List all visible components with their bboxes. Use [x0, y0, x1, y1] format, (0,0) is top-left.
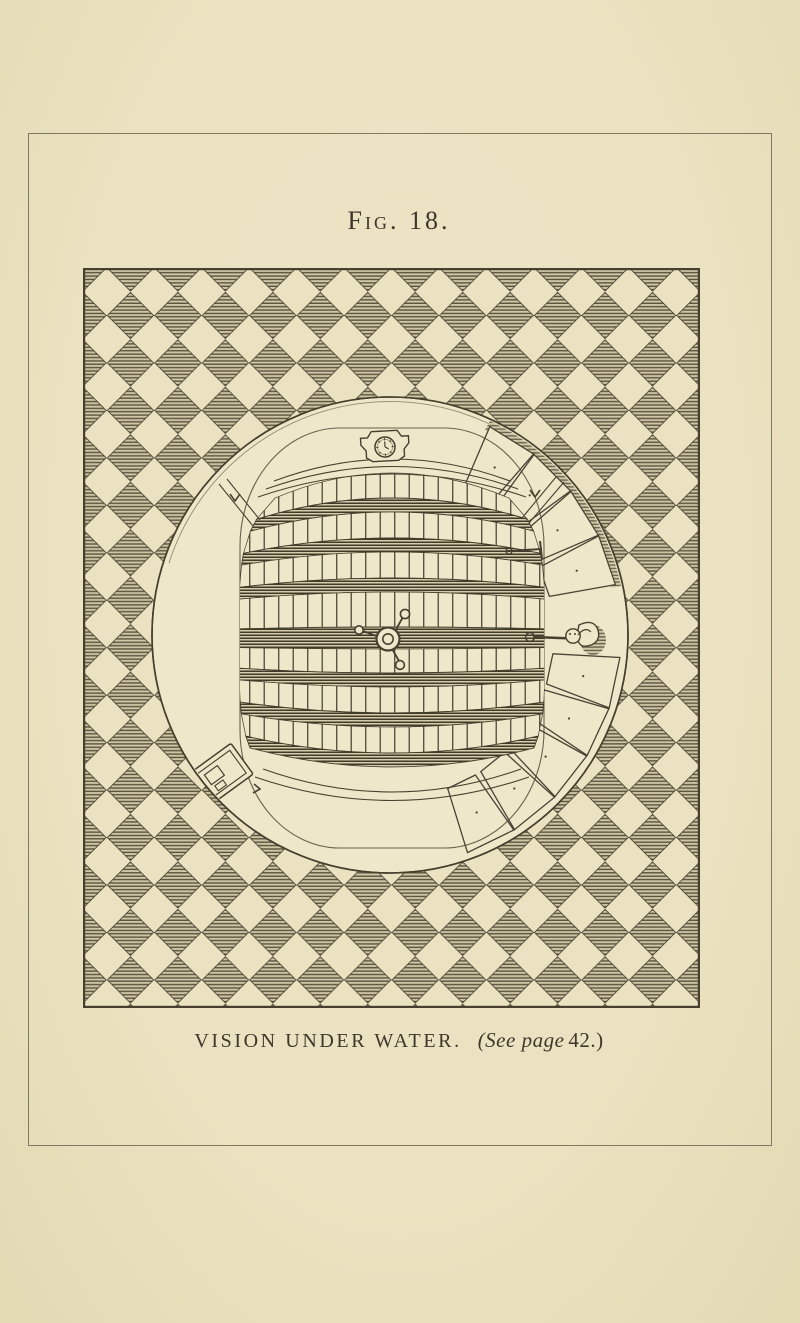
figure-head	[566, 629, 580, 643]
plank-nail	[568, 717, 570, 719]
caption-page-number: 42.)	[568, 1028, 603, 1052]
caption-title: VISION UNDER WATER.	[194, 1030, 461, 1052]
plank-nail	[545, 756, 547, 758]
window-slat-row	[239, 592, 545, 629]
figure-label: Fig. 18.	[28, 206, 770, 236]
plank-nail	[476, 811, 478, 813]
roof-bands	[239, 473, 545, 767]
plank-nail	[576, 570, 578, 572]
book-page: Fig. 18.	[0, 0, 800, 1323]
plank-nail	[494, 466, 496, 468]
plank-nail	[582, 675, 584, 677]
window-slat-row	[239, 648, 545, 673]
caption-see-page: (See page	[478, 1028, 565, 1052]
figure-caption: VISION UNDER WATER.(See page42.)	[28, 1028, 770, 1053]
engraving	[83, 268, 700, 1008]
plank-nail	[529, 494, 531, 496]
plank-nail	[513, 787, 515, 789]
plank-nail	[556, 529, 558, 531]
vision-under-water-engraving	[83, 268, 700, 1008]
